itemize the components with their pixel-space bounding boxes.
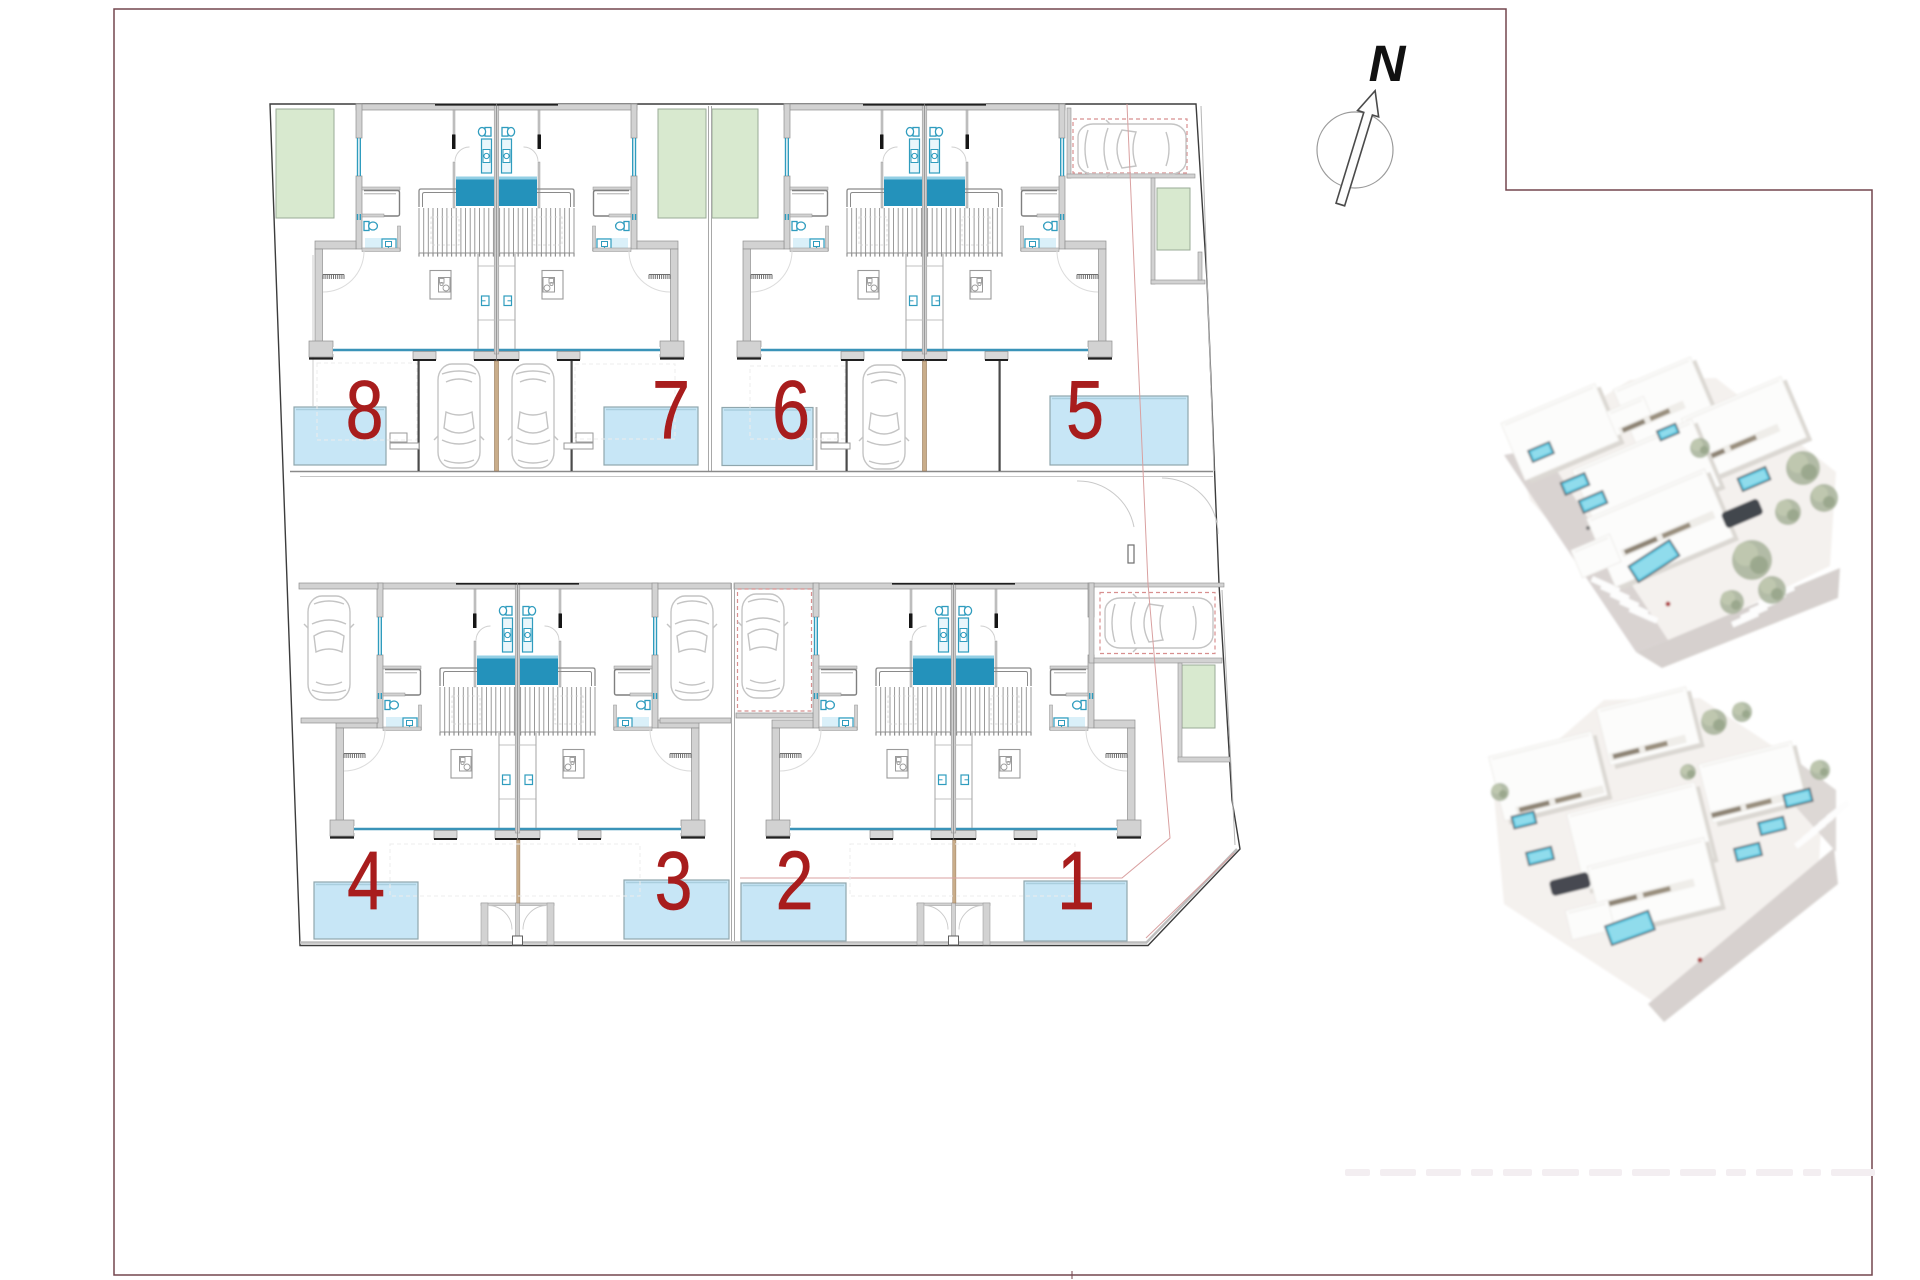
svg-text:N: N: [1369, 35, 1407, 92]
svg-text:2: 2: [776, 835, 814, 928]
svg-text:4: 4: [347, 835, 385, 928]
svg-text:1: 1: [1057, 835, 1095, 928]
svg-text:6: 6: [772, 364, 810, 457]
svg-text:3: 3: [655, 835, 693, 928]
svg-text:5: 5: [1066, 364, 1104, 457]
svg-text:8: 8: [346, 364, 384, 457]
svg-text:7: 7: [652, 364, 690, 457]
